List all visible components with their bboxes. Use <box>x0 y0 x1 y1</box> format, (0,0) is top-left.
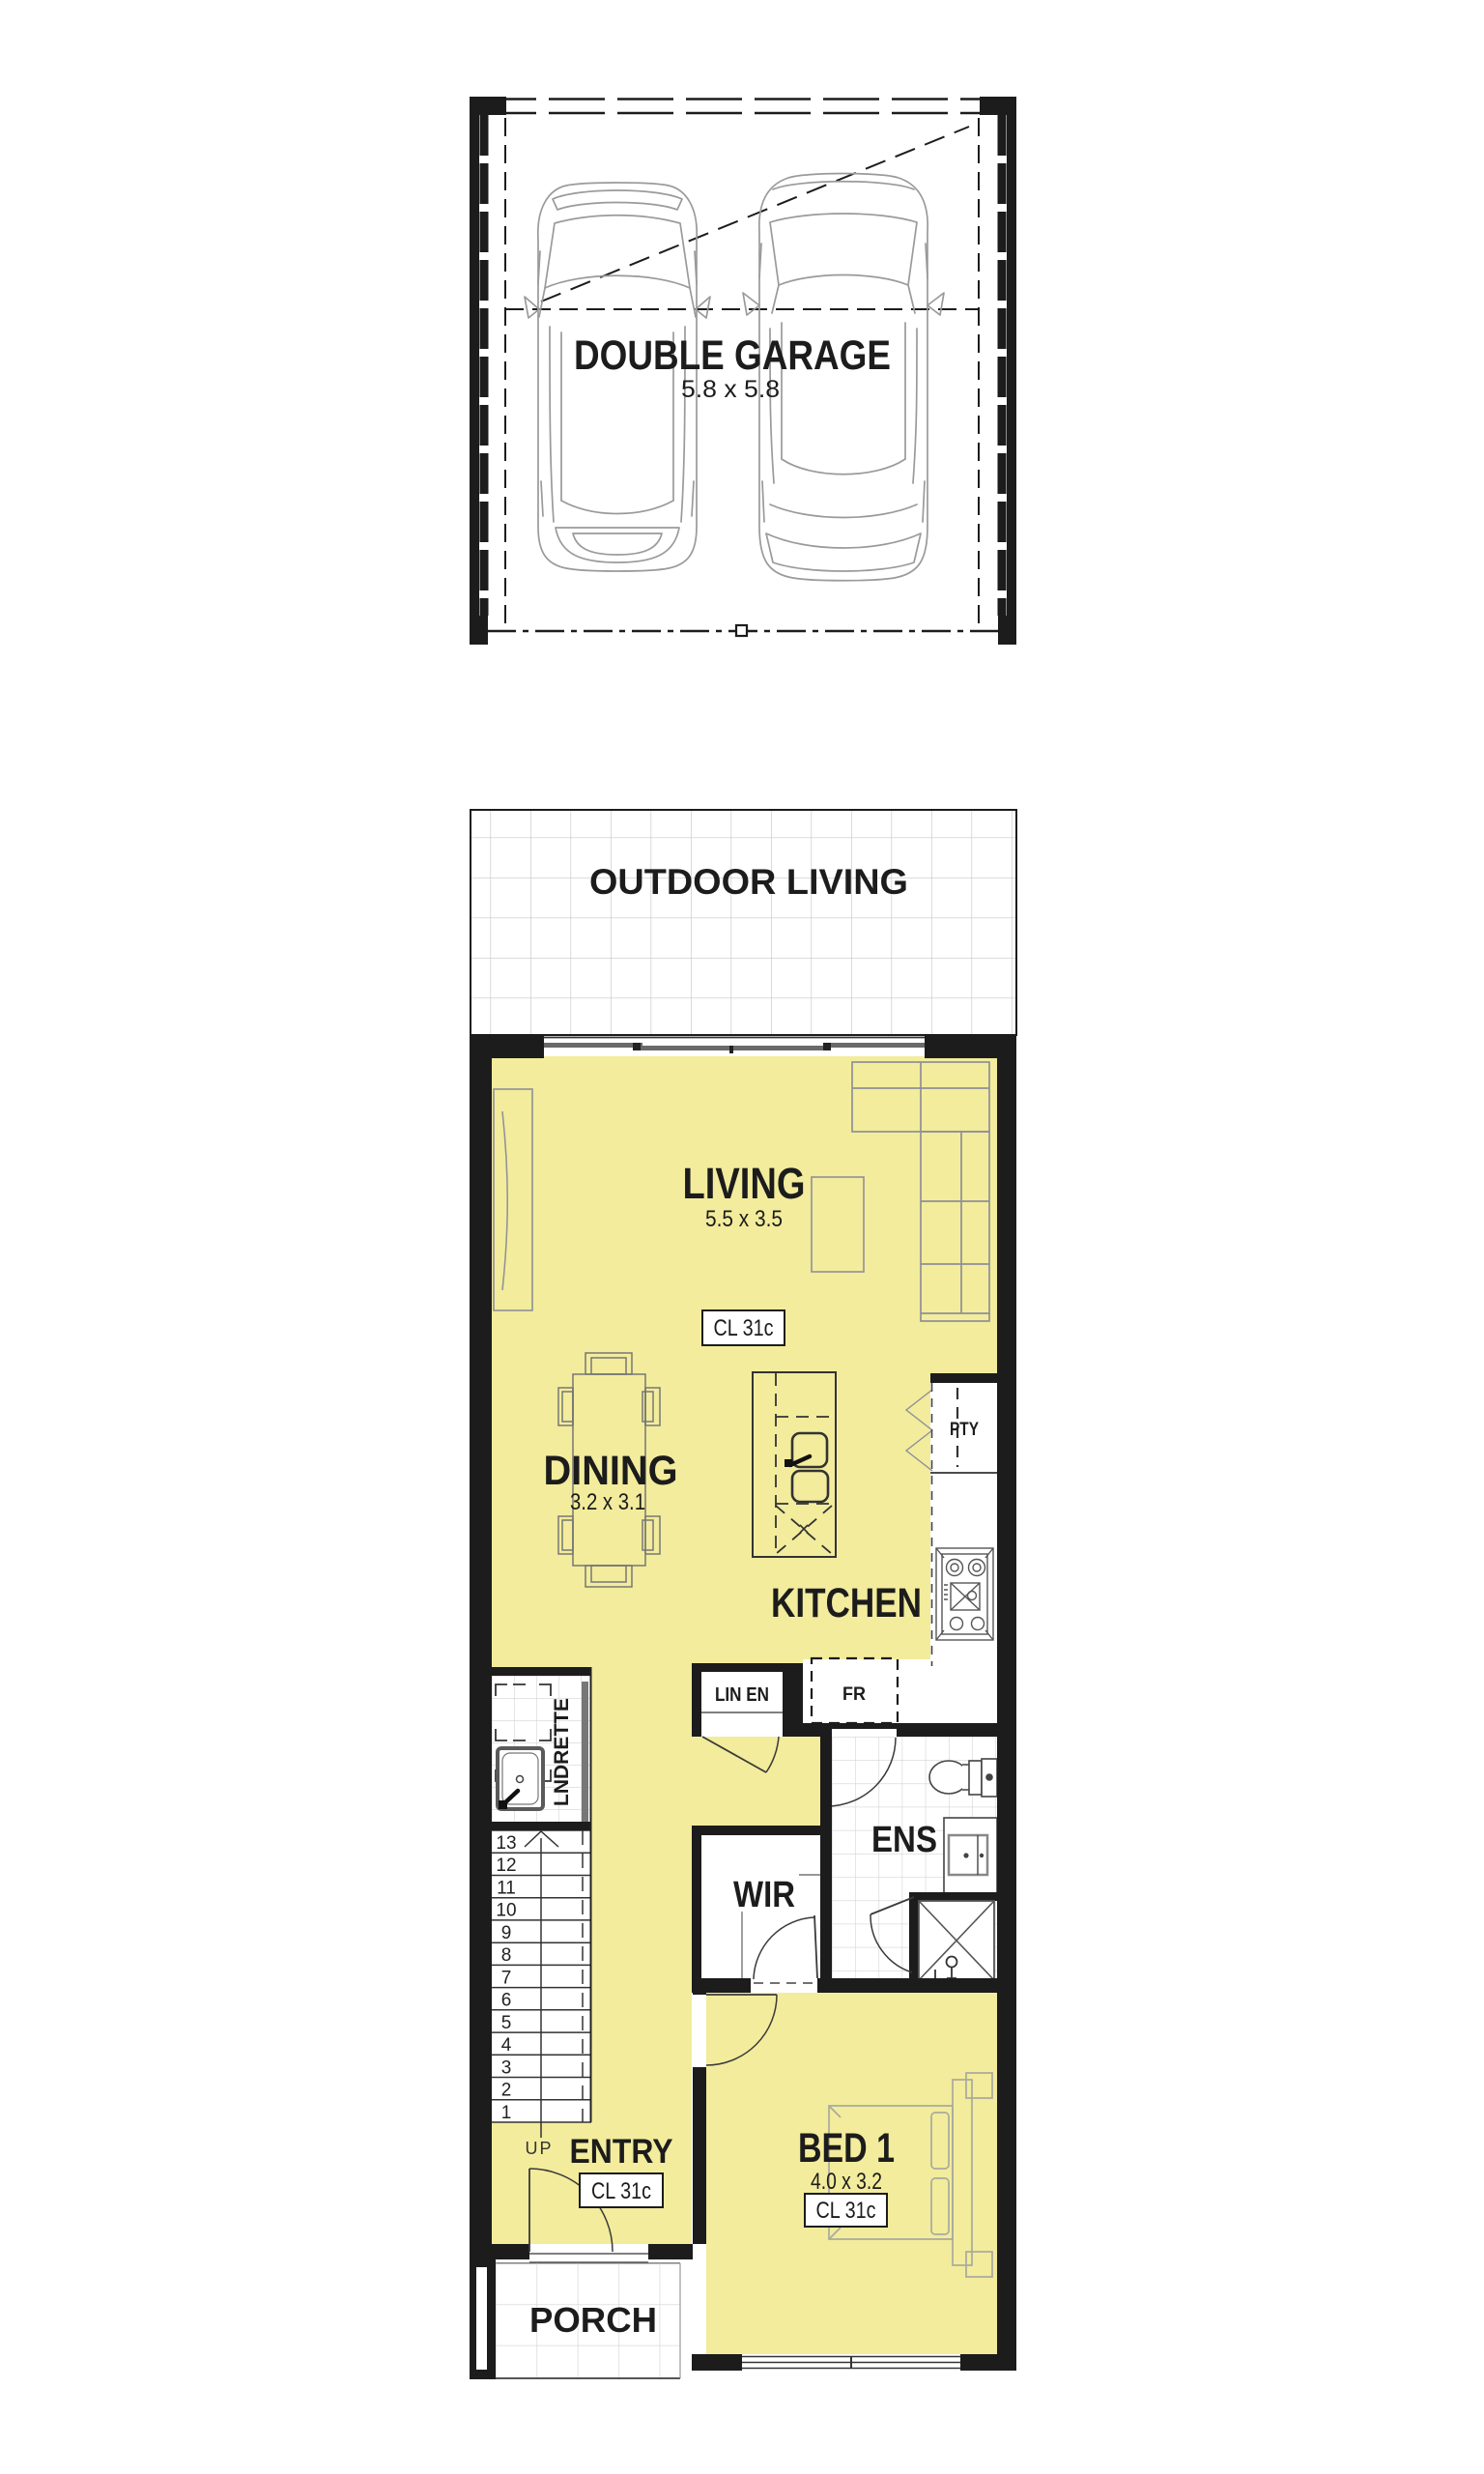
svg-text:CL 31c: CL 31c <box>714 1315 774 1341</box>
svg-text:KITCHEN: KITCHEN <box>771 1580 922 1626</box>
svg-text:1: 1 <box>501 2103 512 2123</box>
svg-text:WIR: WIR <box>733 1875 795 1915</box>
svg-text:ENTRY: ENTRY <box>570 2133 673 2171</box>
svg-text:12: 12 <box>496 1855 516 1876</box>
svg-text:ENS: ENS <box>871 1820 937 1860</box>
svg-text:DINING: DINING <box>544 1448 678 1494</box>
svg-text:5.5 x 3.5: 5.5 x 3.5 <box>705 1206 783 1232</box>
svg-text:13: 13 <box>496 1833 516 1854</box>
svg-text:10: 10 <box>496 1901 516 1921</box>
svg-text:3.2 x 3.1: 3.2 x 3.1 <box>570 1489 645 1515</box>
svg-text:4.0 x 3.2: 4.0 x 3.2 <box>811 2169 882 2195</box>
svg-text:9: 9 <box>501 1923 512 1943</box>
svg-text:CL 31c: CL 31c <box>591 2178 651 2204</box>
svg-text:FR: FR <box>842 1684 866 1705</box>
svg-text:4: 4 <box>501 2035 512 2056</box>
svg-text:3: 3 <box>501 2057 512 2078</box>
svg-text:2: 2 <box>501 2081 512 2101</box>
svg-text:PTY: PTY <box>950 1420 979 1440</box>
svg-text:5.8 x 5.8: 5.8 x 5.8 <box>681 376 780 403</box>
svg-text:BED 1: BED 1 <box>798 2125 895 2172</box>
svg-text:OUTDOOR LIVING: OUTDOOR LIVING <box>589 862 908 902</box>
svg-text:8: 8 <box>501 1945 512 1966</box>
svg-text:7: 7 <box>501 1968 512 1988</box>
svg-text:LNDRETTE: LNDRETTE <box>551 1698 573 1806</box>
svg-text:LIVING: LIVING <box>683 1159 806 1208</box>
svg-text:5: 5 <box>501 2013 512 2033</box>
svg-text:6: 6 <box>501 1991 512 2011</box>
svg-text:PORCH: PORCH <box>529 2300 657 2340</box>
svg-text:UP: UP <box>525 2139 553 2158</box>
svg-text:11: 11 <box>497 1879 516 1899</box>
svg-text:LIN EN: LIN EN <box>715 1684 769 1706</box>
svg-text:DOUBLE GARAGE: DOUBLE GARAGE <box>574 332 891 379</box>
svg-text:CL 31c: CL 31c <box>816 2198 876 2224</box>
